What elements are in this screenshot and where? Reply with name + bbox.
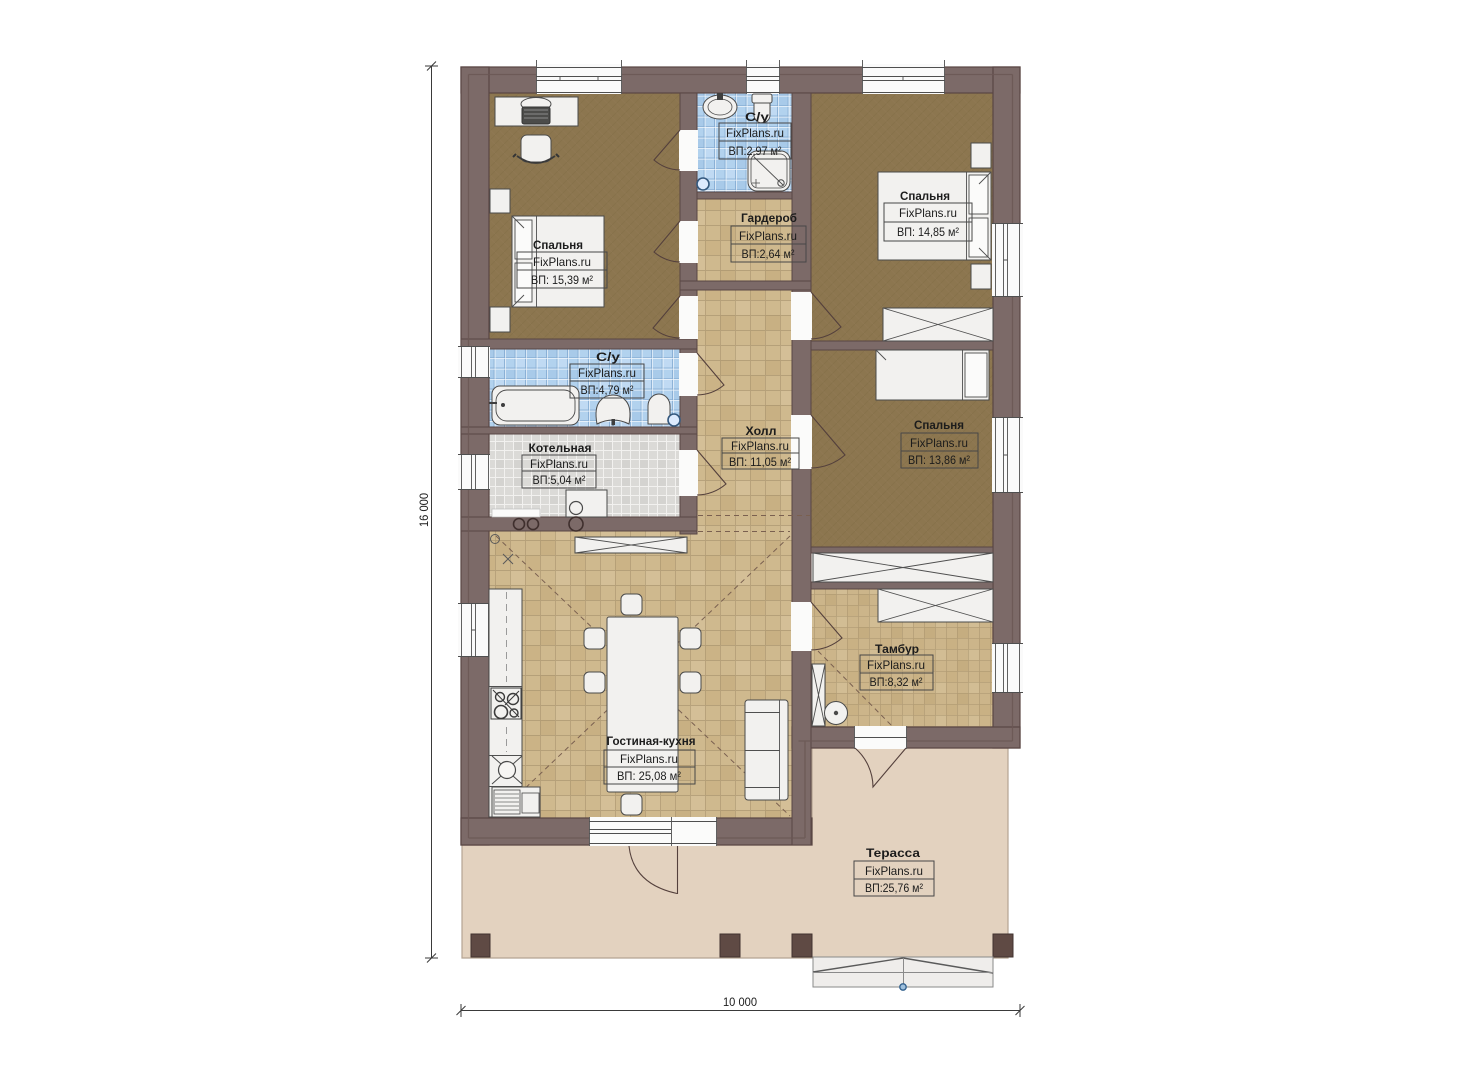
svg-text:Гостиная-кухня: Гостиная-кухня (607, 734, 696, 748)
svg-text:ВП: 14,85 м²: ВП: 14,85 м² (897, 225, 959, 239)
svg-text:FixPlans.ru: FixPlans.ru (578, 366, 636, 380)
svg-text:FixPlans.ru: FixPlans.ru (620, 752, 678, 766)
svg-text:ВП:8,32 м²: ВП:8,32 м² (870, 675, 923, 689)
svg-text:FixPlans.ru: FixPlans.ru (726, 126, 784, 140)
svg-text:С/у: С/у (596, 350, 620, 364)
svg-text:Спальня: Спальня (533, 238, 583, 252)
svg-text:FixPlans.ru: FixPlans.ru (739, 229, 797, 243)
svg-text:ВП:4,79 м²: ВП:4,79 м² (581, 383, 634, 397)
svg-text:Спальня: Спальня (900, 189, 950, 203)
svg-text:10 000: 10 000 (723, 995, 757, 1009)
svg-text:ВП: 11,05 м²: ВП: 11,05 м² (729, 455, 791, 469)
svg-text:Тамбур: Тамбур (875, 642, 919, 656)
svg-text:ВП:2,64 м²: ВП:2,64 м² (742, 247, 795, 261)
svg-text:FixPlans.ru: FixPlans.ru (731, 439, 789, 453)
svg-text:FixPlans.ru: FixPlans.ru (865, 864, 923, 878)
svg-text:Холл: Холл (746, 424, 777, 438)
svg-text:ВП: 25,08 м²: ВП: 25,08 м² (617, 769, 681, 783)
svg-text:ВП:2,97 м²: ВП:2,97 м² (729, 144, 782, 158)
svg-text:Гардероб: Гардероб (741, 211, 797, 225)
svg-text:Терасса: Терасса (866, 846, 920, 860)
svg-text:FixPlans.ru: FixPlans.ru (533, 255, 591, 269)
svg-text:ВП: 15,39 м²: ВП: 15,39 м² (531, 273, 593, 287)
svg-text:FixPlans.ru: FixPlans.ru (867, 658, 925, 672)
svg-text:ВП: 13,86 м²: ВП: 13,86 м² (908, 453, 970, 467)
svg-text:16 000: 16 000 (417, 493, 431, 527)
svg-text:С/у: С/у (745, 110, 769, 124)
svg-text:FixPlans.ru: FixPlans.ru (910, 436, 968, 450)
svg-text:Спальня: Спальня (914, 418, 964, 432)
svg-text:FixPlans.ru: FixPlans.ru (530, 457, 588, 471)
svg-text:ВП:25,76 м²: ВП:25,76 м² (865, 881, 923, 895)
svg-text:FixPlans.ru: FixPlans.ru (899, 206, 957, 220)
svg-text:Котельная: Котельная (529, 441, 592, 455)
svg-text:ВП:5,04 м²: ВП:5,04 м² (533, 473, 586, 487)
